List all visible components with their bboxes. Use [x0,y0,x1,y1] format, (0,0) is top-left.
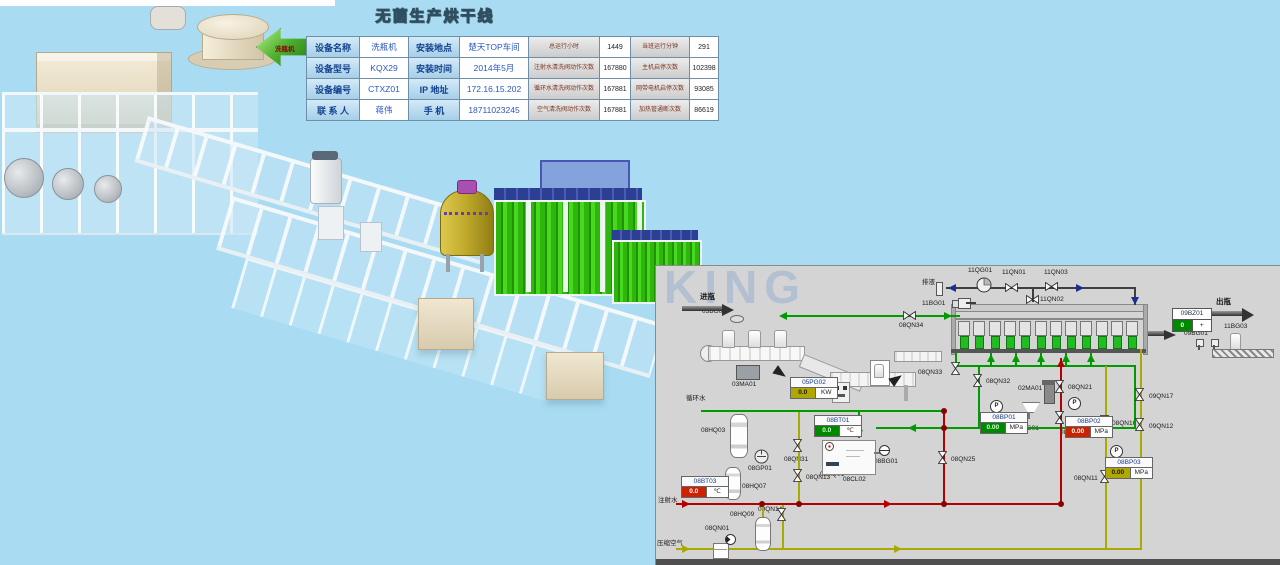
meter-dot [843,386,847,390]
elevator-belt [894,351,942,362]
outfeed-conveyor [1212,349,1274,358]
pipe-junction [941,425,947,431]
tag-label: 02MA01 [1018,386,1042,393]
info-table-label: 主机启停次数 [631,58,689,78]
drain-flange [936,282,943,296]
display-unit: ℃ [839,426,861,436]
outfeed-arrow-head [1242,308,1254,322]
pump-08GP01 [754,449,769,464]
tank-flange [457,180,477,194]
info-table-value: 2014年5月 [460,58,528,78]
tag-label: 压缩空气 [657,541,683,548]
bottle [748,330,761,348]
valve-08QN24[interactable] [1055,411,1064,424]
washer-rail [956,318,1144,320]
unit-level-bar [826,462,839,466]
tag-label: 08QN01 [705,526,729,533]
flow-arrow [682,545,690,553]
tag-label: 注射水 [658,498,678,505]
washer-bottle [1128,336,1137,349]
display-unit: KW [815,388,837,398]
flow-arrow [1087,354,1095,362]
discharge-arrow [1148,331,1164,336]
info-table-label: 安装地点 [409,37,459,57]
drum [94,175,122,203]
flow-arrow [987,354,995,362]
flow-arrow [1037,354,1045,362]
info-table-label: 加热管通断次数 [631,100,689,120]
info-table-label: 当班运行分钟 [631,37,689,57]
washer-bottle [1021,336,1030,349]
washer-chamber [1019,321,1031,336]
washer-chamber [1065,321,1077,336]
counter-value: 0 [1173,320,1192,331]
info-table-value: 291 [690,37,718,57]
info-table-label: 手 机 [409,100,459,120]
washer-chamber [973,321,985,336]
nav-arrow-label: 洗瓶机 [275,43,295,53]
pipe-junction [941,408,947,414]
pipe-junction [796,501,802,507]
info-table-value: 楚天TOP车间 [460,37,528,57]
valve-08QN31[interactable] [793,439,802,452]
display-05PG02[interactable]: 05PG020.0KW [790,377,838,399]
sterilizer-top-band [612,230,698,240]
filter-08QN01 [713,543,729,559]
washer-chamber [989,321,1001,336]
display-08BP03[interactable]: 08BP030.00MPa [1105,457,1153,479]
valve-08QN25[interactable] [938,451,947,464]
flow-arrow [884,500,892,508]
valve-11QN02[interactable] [1026,295,1039,304]
cylinder-cap [312,151,338,160]
bottle [874,364,884,378]
flow-arrow [944,312,952,320]
washer-chamber [1035,321,1047,336]
info-table-label: 设备型号 [307,58,359,78]
counter-increment[interactable]: + [1192,320,1212,331]
flow-direction-arrow [772,365,788,381]
flow-arrow [894,545,902,553]
control-cabinet [318,206,344,240]
process-diagram-panel: KING PPP05PG020.0KW08BT010.0℃08BP010.00M… [655,265,1280,565]
pipe [966,302,976,304]
level-sensor-08BG01 [879,445,890,456]
tag-label: 08CL02 [843,477,866,484]
washer-bottle [1113,336,1122,349]
washer-bottle [975,336,984,349]
info-table-label: 安装时间 [409,58,459,78]
tag-label: 进瓶 [700,293,715,301]
valve-09QN14[interactable] [777,508,786,521]
page-title: 无菌生产烘干线 [310,5,560,26]
pump-cap [1042,380,1055,385]
tag-label: 08QN21 [1068,385,1092,392]
machine-hatch [150,6,186,30]
display-08BP01[interactable]: 08BP010.00MPa [980,412,1028,434]
display-tag: 08BP02 [1066,417,1112,427]
display-value: 0.00 [981,423,1005,433]
display-tag: 05PG02 [791,378,837,388]
tank-bolts [444,212,488,215]
tag-label: 08QN25 [951,457,975,464]
washer-chamber [1111,321,1123,336]
infeed-belt [708,346,805,361]
info-table-value: 167881 [600,79,630,99]
valve-08QN21[interactable] [1055,380,1064,393]
washer-bottle [1082,336,1091,349]
washer-bottle [1067,336,1076,349]
enclosure-beam [2,128,258,132]
washer-chamber [1096,321,1108,336]
info-table-value: 167881 [600,100,630,120]
info-table-value: CTXZ01 [360,79,408,99]
control-cabinet [360,222,382,252]
unit-line [846,456,860,457]
pressure-sensor: P [1068,397,1081,410]
info-table-label: IP 地址 [409,79,459,99]
info-table-value: 86619 [690,100,718,120]
tag-label: 11QG01 [968,268,992,275]
tag-label: 08QN33 [918,370,942,377]
flow-arrow [1057,359,1065,367]
display-unit: MPa [1090,427,1112,437]
bottle [722,330,735,348]
tag-label: 08QN34 [899,323,923,330]
thermometer [825,442,834,451]
info-table-value: 167880 [600,58,630,78]
pipe [676,548,1142,550]
display-08BP02[interactable]: 08BP020.00MPa [1065,416,1113,438]
counter-tag: 09BZ01 [1173,309,1211,320]
tag-label: 出瓶 [1216,298,1231,306]
washer-chamber [1050,321,1062,336]
flow-arrow [1076,284,1084,292]
display-tag: 08BT01 [815,416,861,426]
tag-label: 08QN31 [784,457,808,464]
washer-bottle [1052,336,1061,349]
tag-label: 11BG03 [1224,324,1247,331]
pipe [701,410,945,412]
valve-11QN01[interactable] [1005,283,1018,292]
valve-08QN33[interactable] [951,362,960,375]
tank-08HQ09 [755,517,771,551]
washer-chamber [1126,321,1138,336]
window-edge [0,0,335,6]
display-unit: MPa [1005,423,1027,433]
valve-09QN12[interactable] [1135,418,1144,431]
info-table-value: 102398 [690,58,718,78]
sensor-03BG01 [730,315,744,323]
tag-label: 09QN12 [1149,424,1173,431]
tag-label: 11QN02 [1040,297,1064,304]
info-table-label: 设备名称 [307,37,359,57]
washer-bottle [960,336,969,349]
washer-chamber [958,321,970,336]
washer-top-bar [951,304,1148,312]
tag-label: 08QN11 [1074,476,1098,483]
display-value: 0.0 [791,388,815,398]
info-table-value: KQX29 [360,58,408,78]
tag-label: 08BG01 [874,459,898,466]
washer-bottle [1006,336,1015,349]
flow-arrow [682,500,690,508]
display-tag: 08BP03 [1106,458,1152,468]
unit-line [846,450,864,451]
drum [4,158,44,198]
gauge-08QN01 [725,534,736,545]
tag-label: 11QN01 [1002,270,1026,277]
tag-label: 08HQ09 [730,512,754,519]
sterilizer-top-band [494,188,642,200]
motor-03MA01 [736,365,760,380]
flow-arrow [908,424,916,432]
flow-arrow [779,312,787,320]
outfeed-arrow [1210,311,1242,316]
washer-chamber [1004,321,1016,336]
equipment-info-table: 设备名称洗瓶机安装地点楚天TOP车间总运行小时1449当班运行分钟291设备型号… [306,36,719,121]
tag-label: 08QN32 [986,379,1010,386]
flow-arrow [948,284,956,292]
display-08BT03[interactable]: 08BT030.0℃ [681,476,729,498]
pipe-junction [1058,501,1064,507]
info-table-label: 注射水清洗阀动作次数 [529,58,599,78]
pipe [946,287,1136,289]
tag-label: 11BG01 [922,301,945,308]
washer-right-wall [1143,304,1148,355]
display-value: 0.00 [1066,427,1090,437]
flow-arrow [1012,354,1020,362]
info-table-value: 172.16.15.202 [460,79,528,99]
valve-08QN13[interactable] [793,469,802,482]
tag-label: 08HQ07 [742,484,766,491]
cylinder-unit [310,158,342,204]
display-value: 0.0 [815,426,839,436]
pipe-junction [759,501,765,507]
tag-label: 03MA01 [732,382,756,389]
info-table-label: 循环水清洗阀动作次数 [529,79,599,99]
outfeed-table [546,352,604,400]
info-table-value: 蒋伟 [360,100,408,120]
gold-tank [440,190,494,256]
info-table-value: 18711023245 [460,100,528,120]
infeed-arrow-head [722,304,734,316]
display-08BT01[interactable]: 08BT010.0℃ [814,415,862,437]
infeed-arrow [682,306,722,311]
tag-label: 11QN03 [1044,270,1068,277]
info-table-label: 总运行小时 [529,37,599,57]
valve-11QN03[interactable] [1045,282,1058,291]
washer-bottle [1098,336,1107,349]
display-value: 0.0 [682,487,706,497]
pipe [1140,349,1142,549]
display-value: 0.00 [1106,468,1130,478]
tank-leg [480,254,484,272]
info-table-label: 空气清洗阀动作次数 [529,100,599,120]
washer-base [951,349,1146,353]
counter-box-09BZ01[interactable]: 09BZ010+ [1172,308,1212,332]
washer-bottle [1037,336,1046,349]
drum [52,168,84,200]
tag-label: 排液 [922,280,935,287]
washer-chamber [1080,321,1092,336]
display-unit: ℃ [706,487,728,497]
pipe-junction [941,501,947,507]
tank-leg [446,254,450,272]
pipe [956,365,1136,367]
tank-08HQ03 [730,414,748,458]
display-tag: 08BP01 [981,413,1027,423]
filter-line [713,549,727,550]
pipe [676,503,1062,505]
belt-leg [904,385,908,401]
tag-label: 09QN17 [1149,394,1173,401]
pump-02MA01 [1044,384,1055,404]
pipe [786,315,960,317]
sensor-stem [1198,345,1200,350]
info-table-value: 1449 [600,37,630,57]
pipe [798,412,800,504]
panel-bottom-bar [656,559,1280,565]
hmi-screen: 无菌生产烘干线 洗瓶机 设备名称洗瓶机安装地点楚天TOP车间总运行小时1449当… [0,0,1280,565]
display-unit: MPa [1130,468,1152,478]
bottle [774,330,787,348]
pump-11QG01 [976,277,992,293]
tag-label: 08GP01 [748,466,772,473]
washer-bottle [991,336,1000,349]
valve-08QN32[interactable] [973,374,982,387]
outfeed-table [418,298,474,350]
tag-label: 08HQ03 [701,428,725,435]
valve-08QN34[interactable] [903,311,916,320]
flow-arrow [1131,297,1139,305]
display-tag: 08BT03 [682,477,728,487]
info-table-label: 设备编号 [307,79,359,99]
info-table-value: 93085 [690,79,718,99]
info-table-label: 联 系 人 [307,100,359,120]
bottle-11BG03 [1230,333,1241,350]
rotary-table-top [197,14,269,40]
tag-label: 循环水 [686,396,706,403]
valve-09QN17[interactable] [1135,388,1144,401]
info-table-value: 洗瓶机 [360,37,408,57]
info-table-label: 网带电机启停次数 [631,79,689,99]
